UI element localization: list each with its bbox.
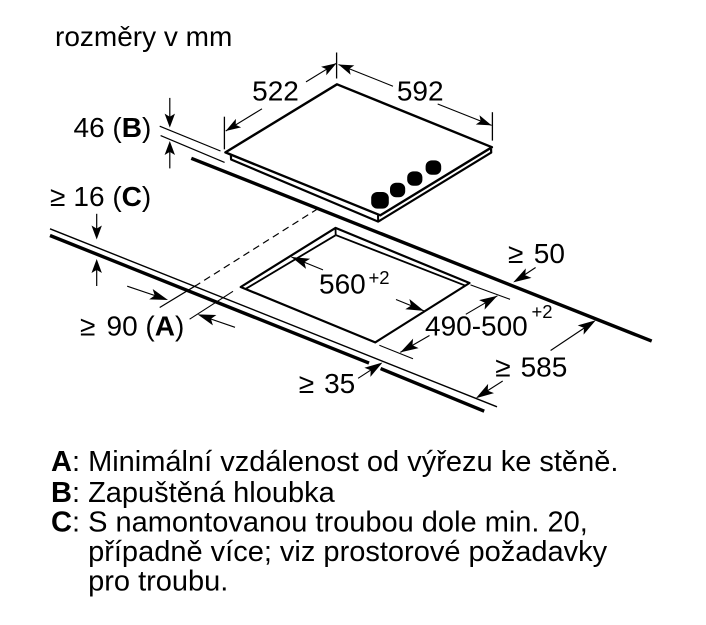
svg-text:≥: ≥ (508, 238, 523, 269)
svg-text:560: 560 (319, 269, 366, 300)
svg-text:522: 522 (252, 76, 299, 107)
svg-text:B: Zapuštěná hloubka: B: Zapuštěná hloubka (51, 477, 336, 509)
svg-text:≥: ≥ (80, 310, 95, 341)
svg-text:C: S namontovanou troubou dole: C: S namontovanou troubou dole min. 20, (51, 506, 588, 538)
svg-text:+2: +2 (369, 267, 390, 288)
svg-text:16 (C): 16 (C) (73, 181, 151, 212)
svg-text:≥: ≥ (50, 181, 65, 212)
svg-text:≥: ≥ (495, 352, 510, 383)
svg-text:případně více; viz prostorové: případně více; viz prostorové požadavky (88, 536, 608, 568)
svg-text:≥: ≥ (299, 368, 314, 399)
svg-text:50: 50 (534, 238, 565, 269)
svg-text:A: Minimální vzdálenost od výř: A: Minimální vzdálenost od výřezu ke stě… (51, 446, 618, 478)
svg-text:90 (A): 90 (A) (107, 310, 185, 341)
svg-text:592: 592 (397, 76, 444, 107)
svg-text:35: 35 (324, 368, 355, 399)
svg-text:46 (B): 46 (B) (74, 112, 152, 143)
svg-text:+2: +2 (532, 301, 553, 322)
svg-text:490-500: 490-500 (425, 311, 528, 342)
svg-text:rozměry v mm: rozměry v mm (55, 21, 232, 52)
svg-text:pro troubu.: pro troubu. (88, 565, 228, 597)
svg-text:585: 585 (521, 352, 568, 383)
